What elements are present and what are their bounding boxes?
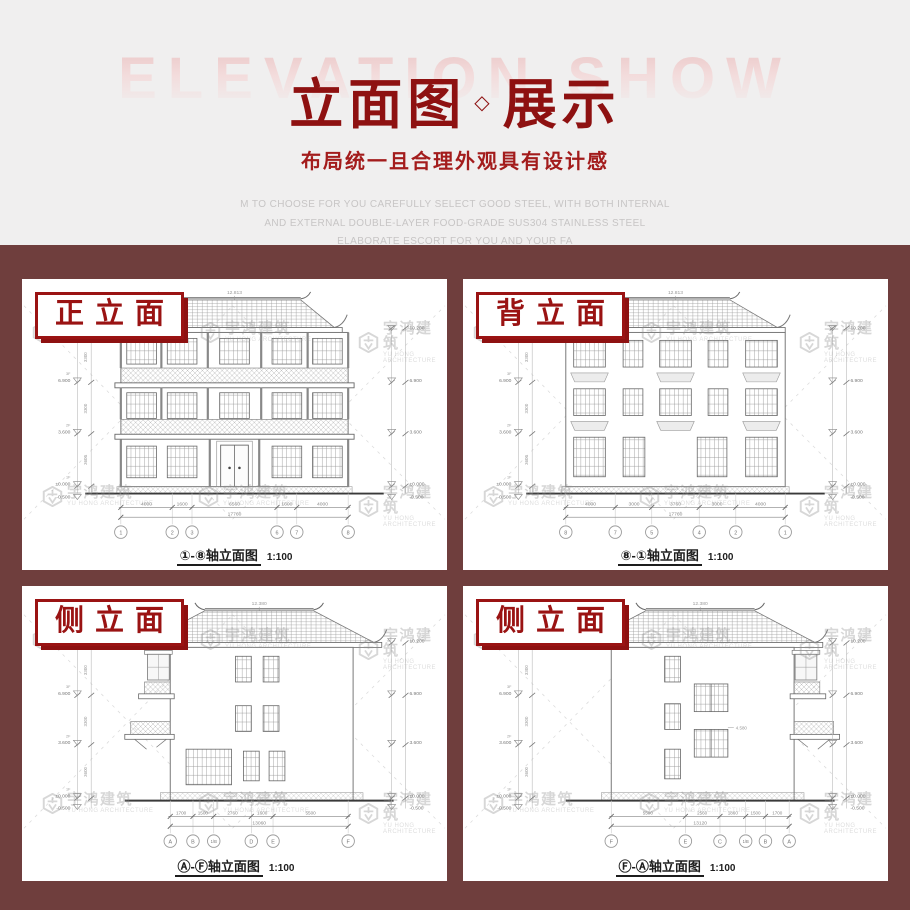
dim-value: 1600 <box>257 810 268 815</box>
level-value: 3.600 <box>850 740 863 746</box>
dim-value: 2560 <box>697 810 708 815</box>
left-dimensions: 10.200 6.900 3.600 ±0.000 -0.500 3F 2F 1… <box>496 325 535 500</box>
drawing-caption: ⑧-①轴立面图1:100 <box>463 545 888 565</box>
level-value: ±0.000 <box>409 794 424 800</box>
floor-height: 3600 <box>83 766 88 776</box>
floor-height: 3600 <box>524 766 529 776</box>
hero-description: M TO CHOOSE FOR YOU CAREFULLY SELECT GOO… <box>0 196 910 245</box>
bottom-dimensions: 1700 1500 2760 1600 5500 13060 A B 1/B D <box>164 801 354 848</box>
dim-value: 1700 <box>772 810 783 815</box>
caption-title: Ⓕ-Ⓐ轴立面图 <box>616 859 704 877</box>
level-value: ±0.000 <box>55 482 70 488</box>
drawing-caption: ①-⑧轴立面图1:100 <box>22 545 447 565</box>
left-dimensions: 10.200 6.900 3.600 ±0.000 -0.500 3F 2F 1… <box>55 325 94 500</box>
axis-label: 1 <box>784 530 787 536</box>
dim-value: 3760 <box>670 501 681 507</box>
balcony <box>139 650 175 698</box>
caption-scale: 1:100 <box>267 552 293 563</box>
dim-value: 3000 <box>712 501 723 507</box>
dim-value: 2760 <box>227 810 238 815</box>
level-value: 6.900 <box>499 691 512 697</box>
dim-value: 1600 <box>177 501 188 507</box>
floor-tag: 3F <box>66 685 71 689</box>
axis-label: E <box>684 839 688 845</box>
right-dimensions: 10.200 6.900 3.600 ±0.000 -0.500 <box>388 325 425 500</box>
level-value: -0.500 <box>850 805 864 811</box>
floor-height: 3300 <box>524 352 529 362</box>
dim-value: 4000 <box>141 501 152 507</box>
drawing-caption: Ⓐ-Ⓕ轴立面图1:100 <box>22 856 447 876</box>
panel-side-elevation-left: 侧立面 宇鸿建筑YU HONG ARCHITECTURE宇鸿建筑YU HONG … <box>22 586 447 881</box>
axis-label: 1 <box>119 530 122 536</box>
dim-value: 4000 <box>317 501 328 507</box>
level-value: -0.500 <box>56 495 70 501</box>
level-value: -0.500 <box>409 805 423 811</box>
axis-bubbles: 8 7 5 4 2 1 <box>560 526 792 538</box>
level-value: ±0.000 <box>496 794 511 800</box>
caption-scale: 1:100 <box>708 552 734 563</box>
dim-value: 1500 <box>751 810 762 815</box>
floor-tag: 2F <box>507 734 512 738</box>
level-value: 3.600 <box>58 429 71 435</box>
level-value: 4.580 <box>736 725 748 730</box>
right-dimensions: 10.200 6.900 3.600 ±0.000 -0.500 <box>388 638 425 811</box>
caption-title: ①-⑧轴立面图 <box>177 548 261 566</box>
dim-value: 1700 <box>176 810 187 815</box>
desc-line: AND EXTERNAL DOUBLE-LAYER FOOD-GRADE SUS… <box>0 215 910 234</box>
level-value: 10.200 <box>409 325 424 331</box>
level-value: 10.200 <box>850 638 865 644</box>
dim-value: 3000 <box>628 501 639 507</box>
floor-height: 3300 <box>524 665 529 675</box>
left-dimensions: 10.200 6.900 3.600 ±0.000 -0.500 3F 2F 1… <box>55 638 94 811</box>
bottom-dimensions: 5500 2560 1860 1500 1700 13120 F E C 1/B <box>605 801 795 848</box>
level-value: -0.500 <box>497 495 511 501</box>
level-value: 6.900 <box>58 691 71 697</box>
axis-bubbles: A B 1/B D E F <box>164 835 354 847</box>
axis-label: 7 <box>614 530 617 536</box>
floor-height: 3300 <box>83 665 88 675</box>
level-value: 3.600 <box>409 429 422 435</box>
ridge-elevation: 12.813 <box>668 290 683 296</box>
floor-height: 3300 <box>524 716 529 726</box>
dim-value: 1500 <box>198 810 209 815</box>
axis-label: E <box>271 839 275 845</box>
level-value: 3.600 <box>499 740 512 746</box>
axis-label: 1/B <box>211 839 217 844</box>
dim-value: 6560 <box>229 501 240 507</box>
floor-height: 3600 <box>83 454 88 464</box>
axis-label: 5 <box>650 530 653 536</box>
floor-tag: 3F <box>507 685 512 689</box>
axis-label: 8 <box>564 530 567 536</box>
panel-front-elevation: 正立面 宇鸿建筑YU HONG ARCHITECTURE宇鸿建筑YU HONG … <box>22 279 447 570</box>
level-value: ±0.000 <box>55 794 70 800</box>
floor-height: 3300 <box>83 352 88 362</box>
level-value: 3.600 <box>58 740 71 746</box>
drawing-caption: Ⓕ-Ⓐ轴立面图1:100 <box>463 856 888 876</box>
entry-door <box>217 441 253 486</box>
floor-tag: 1F <box>66 476 71 480</box>
axis-label: D <box>249 839 253 845</box>
page-title: 立面图◇展示 <box>0 74 910 136</box>
level-value: 6.900 <box>850 691 863 697</box>
dim-value: 5500 <box>305 810 316 815</box>
ridge-elevation: 12.813 <box>227 290 242 296</box>
level-value: ±0.000 <box>850 482 865 488</box>
level-value: -0.500 <box>56 805 70 811</box>
dim-value: 4000 <box>585 501 596 507</box>
title-left: 立面图 <box>289 75 466 135</box>
axis-label: 2 <box>171 530 174 536</box>
right-dimensions: 10.200 6.900 3.600 ±0.000 -0.500 <box>829 638 866 811</box>
floor-tag: 3F <box>66 372 71 376</box>
level-value: ±0.000 <box>850 794 865 800</box>
axis-label: 4 <box>698 530 701 536</box>
floor-tag: 1F <box>507 476 512 480</box>
dim-value: 5500 <box>643 810 654 815</box>
level-value: -0.500 <box>850 495 864 501</box>
panel-label: 背立面 <box>476 292 625 339</box>
elevation-grid: 正立面 宇鸿建筑YU HONG ARCHITECTURE宇鸿建筑YU HONG … <box>22 279 888 881</box>
desc-line: ELABORATE ESCORT FOR YOU AND YOUR FA <box>0 233 910 245</box>
level-value: 6.900 <box>499 378 512 384</box>
axis-label: 7 <box>295 530 298 536</box>
dim-total: 17760 <box>228 511 242 517</box>
building-body <box>85 332 383 493</box>
axis-label: 3 <box>190 530 193 536</box>
level-value: 6.900 <box>409 378 422 384</box>
bottom-dimensions: 4000 3000 3760 3000 4000 17760 8 7 5 4 <box>560 494 792 539</box>
axis-label: B <box>191 839 195 845</box>
floor-tag: 1F <box>66 788 71 792</box>
level-value: 6.900 <box>58 378 71 384</box>
floor-tag: 2F <box>507 423 512 427</box>
panel-label: 侧立面 <box>35 599 184 646</box>
level-value: 3.600 <box>850 429 863 435</box>
level-value: ±0.000 <box>409 482 424 488</box>
balcony <box>790 650 826 698</box>
level-value: 6.900 <box>850 378 863 384</box>
canopy <box>125 722 174 750</box>
dim-value: 1600 <box>281 501 292 507</box>
axis-label: A <box>168 839 172 845</box>
axis-label: B <box>764 839 768 845</box>
building-body: 4.580 <box>566 647 840 800</box>
floor-tag: 2F <box>66 734 71 738</box>
caption-scale: 1:100 <box>710 863 736 874</box>
diamond-icon: ◇ <box>474 92 494 114</box>
caption-scale: 1:100 <box>269 863 295 874</box>
axis-bubbles: 1 2 3 6 7 8 <box>115 526 355 538</box>
caption-title: Ⓐ-Ⓕ轴立面图 <box>175 859 263 877</box>
right-dimensions: 10.200 6.900 3.600 ±0.000 -0.500 <box>829 325 866 500</box>
level-value: 3.600 <box>499 429 512 435</box>
axis-label: 6 <box>275 530 278 536</box>
floor-tag: 3F <box>507 372 512 376</box>
caption-title: ⑧-①轴立面图 <box>618 548 702 566</box>
panel-side-elevation-right: 侧立面 宇鸿建筑YU HONG ARCHITECTURE宇鸿建筑YU HONG … <box>463 586 888 881</box>
dim-total: 13060 <box>252 820 266 826</box>
dim-total: 13120 <box>693 820 707 826</box>
level-value: 10.200 <box>850 325 865 331</box>
building-body <box>125 647 394 800</box>
floor-height: 3300 <box>83 716 88 726</box>
panel-back-elevation: 背立面 宇鸿建筑YU HONG ARCHITECTURE宇鸿建筑YU HONG … <box>463 279 888 570</box>
bottom-dimensions: 4000 1600 6560 1600 4000 17760 1 2 3 6 <box>115 494 355 539</box>
axis-label: 8 <box>347 530 350 536</box>
level-value: -0.500 <box>497 805 511 811</box>
ridge-elevation: 12.380 <box>693 601 708 607</box>
dim-total: 17760 <box>669 511 683 517</box>
floor-height: 3300 <box>524 403 529 413</box>
floor-tag: 2F <box>66 423 71 427</box>
panel-label: 正立面 <box>35 292 184 339</box>
floor-height: 3300 <box>83 403 88 413</box>
level-value: 6.900 <box>409 691 422 697</box>
panel-label: 侧立面 <box>476 599 625 646</box>
axis-label: 1/B <box>743 839 749 844</box>
level-value: 3.600 <box>409 740 422 746</box>
axis-label: A <box>787 839 791 845</box>
dim-value: 4000 <box>755 501 766 507</box>
hero-section: ELEVATION SHOW 立面图◇展示 布局统一且合理外观具有设计感 M T… <box>0 0 910 245</box>
dim-value: 1860 <box>728 810 739 815</box>
left-dimensions: 10.200 6.900 3.600 ±0.000 -0.500 3F 2F 1… <box>496 638 535 811</box>
desc-line: M TO CHOOSE FOR YOU CAREFULLY SELECT GOO… <box>0 196 910 215</box>
building-body <box>526 332 824 493</box>
axis-label: 2 <box>734 530 737 536</box>
axis-label: C <box>718 839 722 845</box>
title-right: 展示 <box>503 75 621 135</box>
level-value: ±0.000 <box>496 482 511 488</box>
floor-tag: 1F <box>507 788 512 792</box>
page-subtitle: 布局统一且合理外观具有设计感 <box>0 145 910 174</box>
ridge-elevation: 12.380 <box>252 601 267 607</box>
level-value: 10.200 <box>409 638 424 644</box>
floor-height: 3600 <box>524 454 529 464</box>
axis-bubbles: F E C 1/B B A <box>605 835 795 847</box>
level-value: -0.500 <box>409 495 423 501</box>
